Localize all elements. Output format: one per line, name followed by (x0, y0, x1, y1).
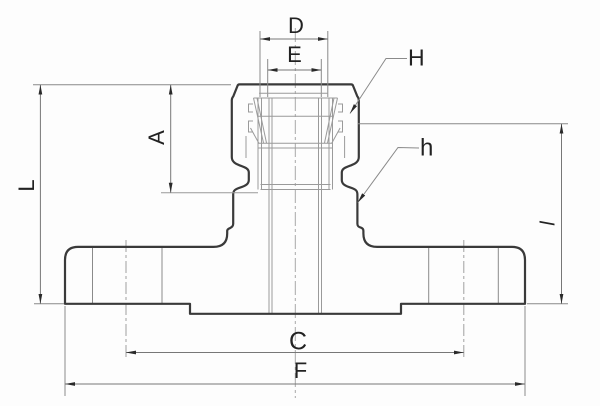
svg-text:E: E (287, 42, 302, 67)
svg-text:D: D (288, 13, 304, 38)
svg-text:C: C (289, 328, 307, 356)
svg-text:l: l (538, 221, 560, 226)
svg-text:H: H (408, 45, 425, 71)
svg-text:h: h (420, 135, 433, 162)
svg-text:L: L (14, 179, 39, 191)
svg-text:F: F (294, 358, 307, 383)
svg-text:A: A (144, 130, 169, 145)
